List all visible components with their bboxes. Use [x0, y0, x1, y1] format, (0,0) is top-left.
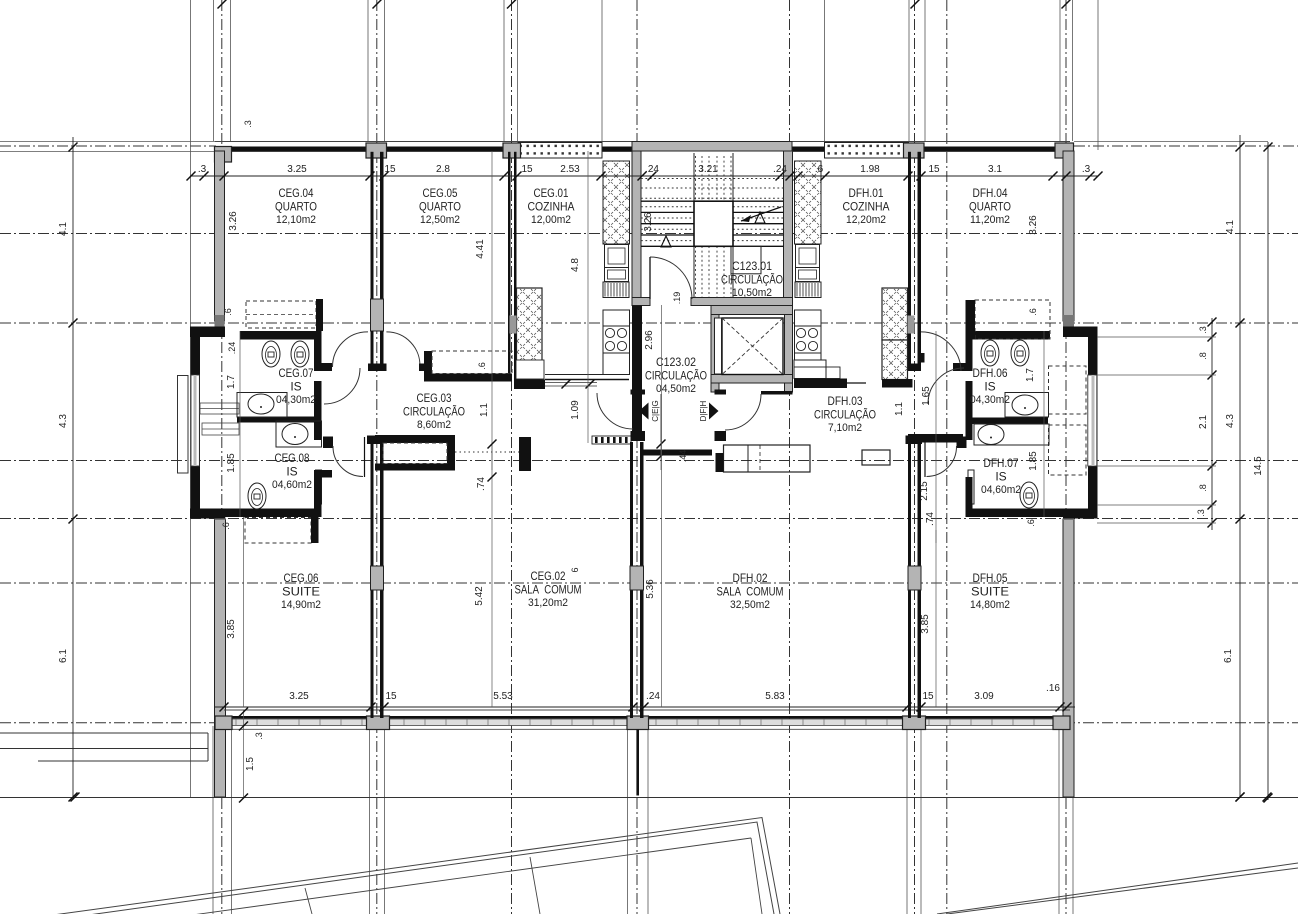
- svg-text:IS: IS: [984, 380, 995, 394]
- svg-text:1.65: 1.65: [921, 386, 932, 406]
- svg-text:15: 15: [928, 164, 940, 175]
- svg-text:1.09: 1.09: [570, 400, 581, 420]
- svg-text:3.26: 3.26: [228, 211, 239, 231]
- svg-text:4.8: 4.8: [570, 258, 581, 272]
- svg-text:CIRCULAÇÃO: CIRCULAÇÃO: [721, 273, 783, 287]
- svg-text:.8: .8: [1198, 352, 1208, 360]
- svg-text:DFH.03: DFH.03: [828, 394, 863, 408]
- svg-text:14.5: 14.5: [1253, 456, 1264, 476]
- svg-text:IS: IS: [995, 470, 1006, 484]
- svg-text:6.1: 6.1: [1223, 649, 1234, 663]
- svg-text:.6: .6: [1026, 519, 1036, 527]
- svg-text:DFH.06: DFH.06: [973, 366, 1008, 380]
- svg-text:.6: .6: [815, 164, 824, 175]
- svg-text:CEG.02: CEG.02: [531, 569, 566, 583]
- svg-text:04,60m2: 04,60m2: [272, 479, 312, 491]
- svg-text:6: 6: [570, 567, 580, 572]
- svg-text:CEG.05: CEG.05: [423, 186, 458, 200]
- svg-text:IS: IS: [290, 380, 301, 394]
- svg-text:3.25: 3.25: [289, 691, 309, 702]
- svg-text:.8: .8: [1198, 484, 1208, 492]
- svg-text:DFH.07: DFH.07: [984, 456, 1019, 470]
- svg-text:DFH.02: DFH.02: [733, 571, 768, 585]
- svg-text:04,30m2: 04,30m2: [970, 394, 1010, 406]
- svg-text:3.21: 3.21: [698, 164, 718, 175]
- svg-text:10,50m2: 10,50m2: [732, 287, 772, 299]
- svg-text:C123.02: C123.02: [656, 355, 696, 369]
- svg-text:.6: .6: [477, 362, 487, 370]
- svg-text:.6: .6: [1028, 308, 1038, 316]
- svg-text:2.1: 2.1: [1198, 415, 1209, 429]
- svg-text:3.26: 3.26: [1028, 215, 1039, 235]
- svg-text:IS: IS: [286, 465, 297, 479]
- svg-text:.44: .44: [678, 450, 688, 463]
- svg-text:QUARTO: QUARTO: [275, 200, 317, 214]
- svg-text:QUARTO: QUARTO: [969, 200, 1011, 214]
- svg-text:15: 15: [521, 164, 533, 175]
- svg-text:3.09: 3.09: [974, 691, 994, 702]
- svg-text:DFH.05: DFH.05: [973, 571, 1008, 585]
- svg-text:CEG.03: CEG.03: [417, 391, 452, 405]
- svg-text:.19: .19: [672, 292, 682, 305]
- svg-text:CEG.01: CEG.01: [534, 186, 569, 200]
- svg-text:.74: .74: [925, 512, 936, 526]
- svg-text:12,20m2: 12,20m2: [846, 214, 886, 226]
- svg-text:14,80m2: 14,80m2: [970, 599, 1010, 611]
- svg-text:15: 15: [385, 691, 397, 702]
- svg-text:5.83: 5.83: [765, 691, 785, 702]
- svg-text:12,10m2: 12,10m2: [276, 214, 316, 226]
- svg-text:12,00m2: 12,00m2: [531, 214, 571, 226]
- svg-text:4.41: 4.41: [475, 239, 486, 259]
- svg-text:1.1: 1.1: [894, 402, 905, 416]
- svg-text:.3: .3: [1196, 509, 1206, 517]
- svg-text:SALA COMUM: SALA COMUM: [717, 585, 784, 599]
- svg-text:15: 15: [922, 691, 934, 702]
- svg-text:SALA COMUM: SALA COMUM: [515, 583, 582, 597]
- svg-text:3.26: 3.26: [643, 212, 654, 232]
- svg-text:4.3: 4.3: [1225, 414, 1236, 428]
- svg-text:8,60m2: 8,60m2: [417, 419, 451, 431]
- svg-text:7,10m2: 7,10m2: [828, 422, 862, 434]
- svg-text:.74: .74: [476, 477, 487, 491]
- svg-text:1.85: 1.85: [1028, 451, 1039, 471]
- svg-text:3.25: 3.25: [287, 164, 307, 175]
- svg-text:1.7: 1.7: [226, 375, 237, 389]
- svg-text:2.15: 2.15: [919, 481, 930, 501]
- svg-text:.24: .24: [773, 164, 787, 175]
- svg-text:.24: .24: [646, 691, 660, 702]
- svg-text:12,50m2: 12,50m2: [420, 214, 460, 226]
- svg-text:5.53: 5.53: [493, 691, 513, 702]
- svg-text:6.1: 6.1: [58, 649, 69, 663]
- svg-text:1.98: 1.98: [860, 164, 880, 175]
- svg-text:2.96: 2.96: [644, 330, 655, 350]
- svg-text:1.85: 1.85: [226, 453, 237, 473]
- svg-text:DFH.04: DFH.04: [973, 186, 1008, 200]
- svg-text:CIRCULAÇÃO: CIRCULAÇÃO: [645, 369, 707, 383]
- svg-text:COZINHA: COZINHA: [843, 200, 890, 214]
- svg-text:32,50m2: 32,50m2: [730, 599, 770, 611]
- svg-text:.24: .24: [645, 164, 659, 175]
- svg-text:C123.01: C123.01: [732, 259, 772, 273]
- svg-text:CEG.06: CEG.06: [284, 571, 319, 585]
- svg-text:5.42: 5.42: [474, 586, 485, 606]
- svg-text:2.8: 2.8: [436, 164, 450, 175]
- svg-text:04,50m2: 04,50m2: [656, 383, 696, 395]
- svg-text:CEG.07: CEG.07: [279, 366, 314, 380]
- svg-text:.3: .3: [198, 164, 207, 175]
- svg-text:11,20m2: 11,20m2: [970, 214, 1010, 226]
- svg-text:.3: .3: [254, 732, 264, 740]
- svg-text:CEG.04: CEG.04: [279, 186, 314, 200]
- svg-text:2.53: 2.53: [560, 164, 580, 175]
- svg-text:1.7: 1.7: [1025, 368, 1036, 382]
- svg-text:04,30m2: 04,30m2: [276, 394, 316, 406]
- svg-text:4.1: 4.1: [58, 222, 69, 236]
- svg-text:C|E|G: C|E|G: [651, 400, 660, 422]
- svg-text:3.1: 3.1: [988, 164, 1002, 175]
- svg-text:31,20m2: 31,20m2: [528, 597, 568, 609]
- svg-text:.16: .16: [1046, 683, 1060, 694]
- svg-text:CIRCULAÇÃO: CIRCULAÇÃO: [403, 405, 465, 419]
- svg-text:SUITE: SUITE: [971, 585, 1009, 599]
- svg-text:1.1: 1.1: [479, 403, 490, 417]
- svg-text:3.85: 3.85: [920, 614, 931, 634]
- svg-text:CEG.08: CEG.08: [275, 451, 310, 465]
- svg-text:.24: .24: [227, 342, 237, 355]
- svg-text:DFH.01: DFH.01: [849, 186, 884, 200]
- svg-text:D|F|H: D|F|H: [699, 400, 708, 421]
- svg-text:.6: .6: [221, 522, 231, 530]
- svg-text:5.36: 5.36: [645, 579, 656, 599]
- svg-text:COZINHA: COZINHA: [528, 200, 575, 214]
- svg-text:3.85: 3.85: [226, 619, 237, 639]
- svg-text:4.3: 4.3: [58, 414, 69, 428]
- svg-text:CIRCULAÇÃO: CIRCULAÇÃO: [814, 408, 876, 422]
- svg-text:14,90m2: 14,90m2: [281, 599, 321, 611]
- svg-text:.3: .3: [1198, 326, 1208, 334]
- svg-text:.3: .3: [1082, 164, 1091, 175]
- svg-text:QUARTO: QUARTO: [419, 200, 461, 214]
- svg-text:SUITE: SUITE: [282, 585, 320, 599]
- svg-text:15: 15: [384, 164, 396, 175]
- svg-text:1.5: 1.5: [245, 757, 256, 771]
- svg-text:.6: .6: [223, 308, 233, 316]
- svg-text:4.1: 4.1: [1225, 220, 1236, 234]
- svg-text:.3: .3: [243, 120, 253, 128]
- svg-text:04,60m2: 04,60m2: [981, 484, 1021, 496]
